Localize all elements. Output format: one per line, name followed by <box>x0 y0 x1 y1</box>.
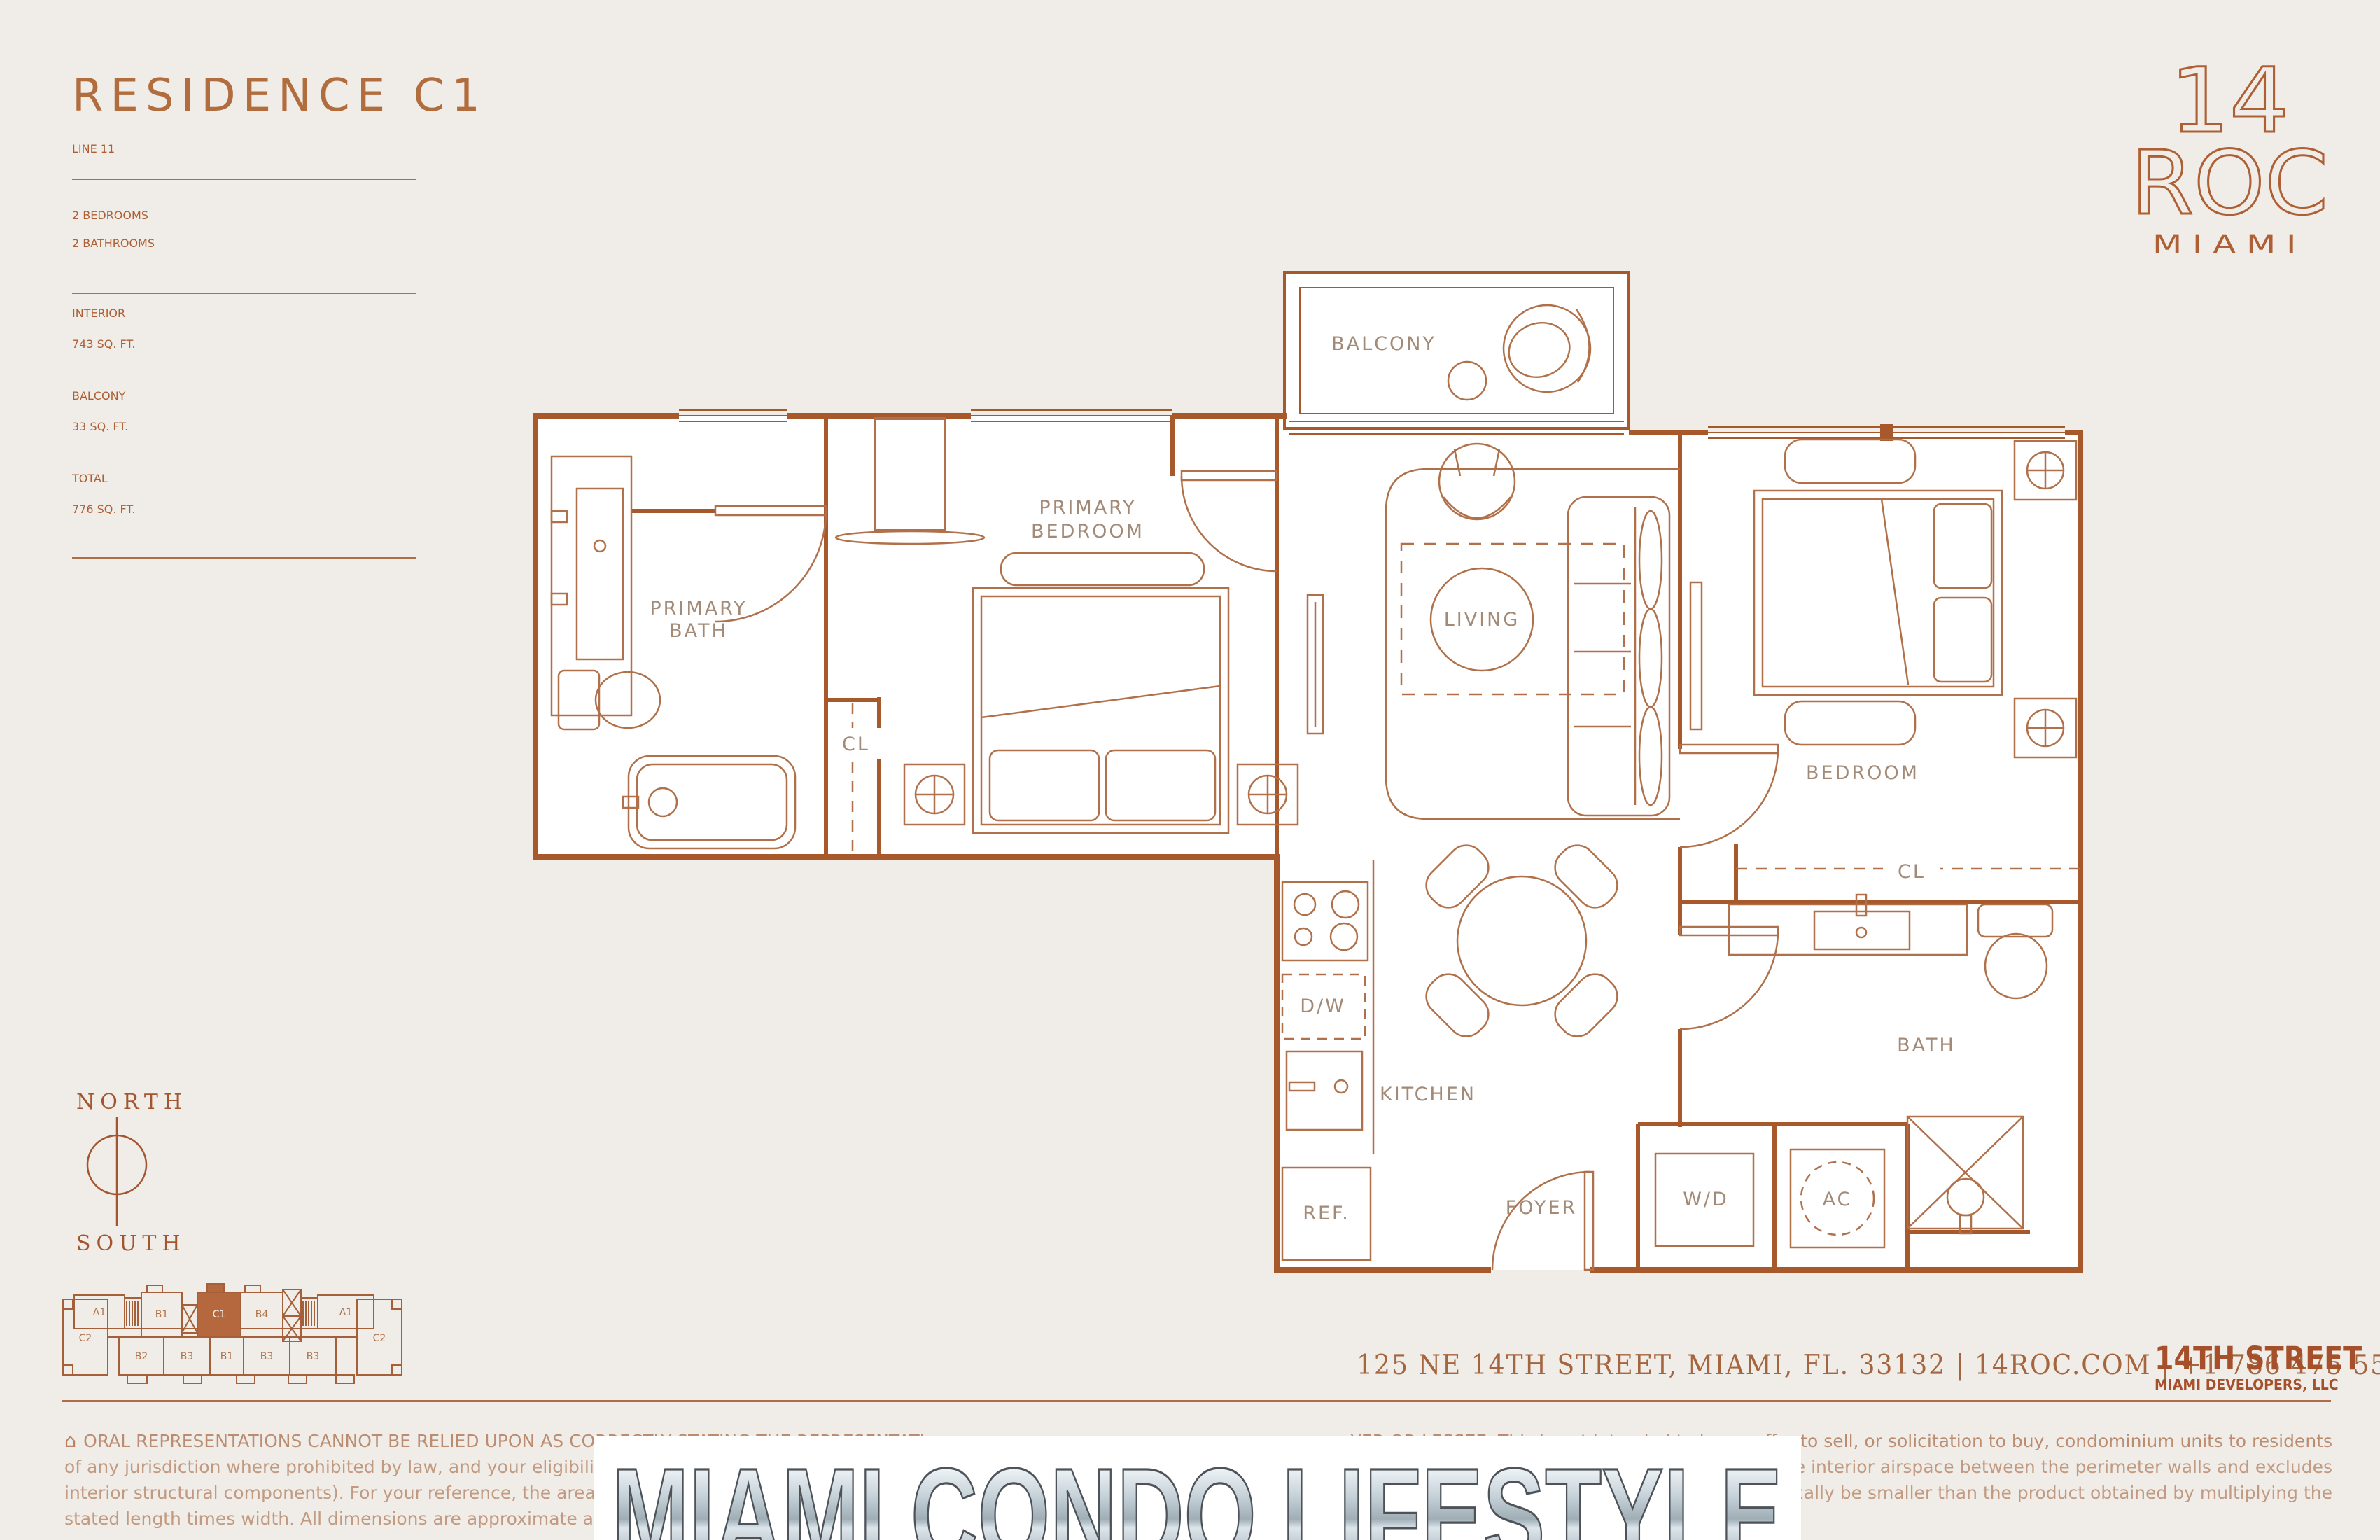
keyplan-label: B1 <box>220 1351 234 1362</box>
room-label-bath: BATH <box>1897 1035 1956 1056</box>
developer-logo: 14TH STREET MIAMI DEVELOPERS, LLC <box>2155 1343 2380 1392</box>
room-label-kitchen: KITCHEN <box>1380 1084 1476 1105</box>
room-label-bedroom: BEDROOM <box>1806 762 1919 784</box>
divider <box>72 557 416 559</box>
compass-south-label: SOUTH <box>76 1231 186 1256</box>
info-panel: RESIDENCE C1 <box>72 70 422 122</box>
room-label-cl-bedroom: CL <box>1898 861 1926 883</box>
footer-divider <box>62 1400 2331 1402</box>
divider <box>72 293 416 294</box>
watermark-text: MIAMI CONDO LIFESTYLE <box>612 1441 1782 1540</box>
keyplan-label: A1 <box>93 1307 106 1318</box>
total-label: TOTAL <box>72 472 422 485</box>
room-label-ref: REF. <box>1303 1203 1350 1224</box>
keyplan-label: C2 <box>373 1333 386 1344</box>
keyplan-label: B4 <box>255 1309 269 1320</box>
room-label-ac: AC <box>1823 1189 1853 1210</box>
room-label-primary-bath-2: BATH <box>669 620 728 642</box>
bathrooms-label: 2 BATHROOMS <box>72 230 422 258</box>
bed-bath-block: 2 BEDROOMS 2 BATHROOMS <box>72 202 422 258</box>
floor-plan: BALCONY PRIMARY BEDROOM PRIMARY BATH CL … <box>518 266 2100 1302</box>
compass: NORTH SOUTH <box>66 1078 248 1267</box>
interior-label: INTERIOR <box>72 307 422 320</box>
keyplan-label: B3 <box>181 1351 194 1362</box>
brand-logo: 14 ROC MIAMI <box>2121 49 2338 266</box>
developer-subtitle: MIAMI DEVELOPERS, LLC <box>2155 1378 2372 1392</box>
watermark-overlay: MIAMI CONDO LIFESTYLE <box>594 1436 1801 1540</box>
keyplan-label: B1 <box>155 1309 169 1320</box>
key-plan: A1 B1 C1 B4 A1 C2 B2 B3 B1 B3 B3 C2 <box>57 1277 414 1399</box>
equal-housing-icon: ⌂ <box>64 1430 76 1452</box>
room-label-primary-bath-1: PRIMARY <box>650 598 747 619</box>
brand-miami: MIAMI <box>2152 230 2306 260</box>
keyplan-label: A1 <box>339 1307 352 1318</box>
page-title: RESIDENCE C1 <box>72 70 422 122</box>
developer-name: 14TH STREET <box>2155 1343 2362 1374</box>
keyplan-label: C2 <box>79 1333 92 1344</box>
room-label-living: LIVING <box>1444 609 1520 631</box>
room-label-wd: W/D <box>1683 1189 1729 1210</box>
room-label-primary-bedroom-1: PRIMARY <box>1039 497 1136 519</box>
balcony-value: 33 SQ. FT. <box>72 420 422 433</box>
interior-value: 743 SQ. FT. <box>72 337 422 351</box>
keyplan-label: B3 <box>307 1351 320 1362</box>
room-label-dw: D/W <box>1300 995 1346 1017</box>
floorplan-brochure-page: RESIDENCE C1 LINE 11 2 BEDROOMS 2 BATHRO… <box>0 0 2380 1540</box>
keyplan-label-c1: C1 <box>213 1309 226 1320</box>
room-label-balcony: BALCONY <box>1331 333 1436 355</box>
compass-north-label: NORTH <box>76 1090 188 1114</box>
balcony-label: BALCONY <box>72 389 422 402</box>
room-label-primary-bedroom-2: BEDROOM <box>1031 521 1144 542</box>
window-mullion <box>1880 424 1893 441</box>
divider <box>72 178 416 180</box>
room-label-cl-primary: CL <box>842 734 870 755</box>
room-label-foyer: FOYER <box>1506 1197 1578 1219</box>
bedrooms-label: 2 BEDROOMS <box>72 202 422 230</box>
total-value: 776 SQ. FT. <box>72 503 422 516</box>
brand-roc: ROC <box>2131 132 2328 234</box>
keyplan-label: B3 <box>260 1351 274 1362</box>
line-label: LINE 11 <box>72 142 422 155</box>
keyplan-label: B2 <box>135 1351 148 1362</box>
